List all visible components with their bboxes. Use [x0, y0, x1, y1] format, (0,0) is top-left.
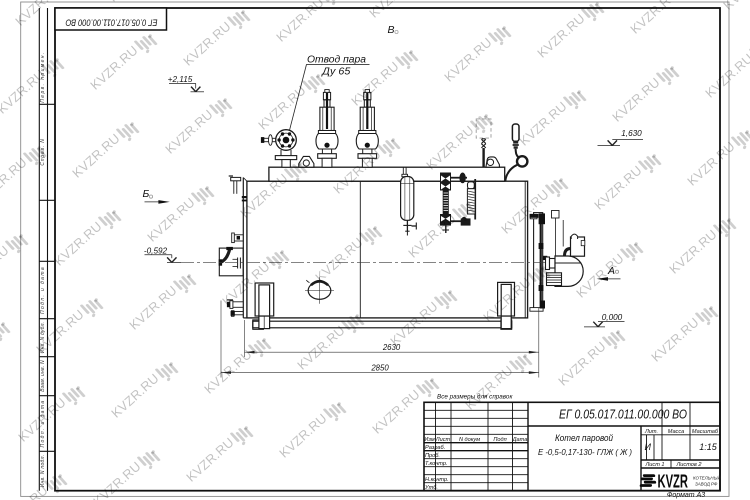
svg-text:Дата: Дата: [512, 437, 528, 443]
svg-text:KVZR: KVZR: [658, 471, 689, 492]
svg-text:Взам. инв. N: Взам. инв. N: [40, 360, 46, 392]
svg-text:+2,115: +2,115: [168, 75, 193, 84]
svg-text:Подп: Подп: [493, 437, 506, 443]
svg-text:Листов 2: Листов 2: [675, 462, 702, 468]
svg-text:Утб.: Утб.: [424, 485, 438, 491]
svg-text:Б: Б: [143, 188, 150, 200]
svg-text:Разраб.: Разраб.: [425, 445, 445, 451]
svg-text:1,630: 1,630: [621, 129, 642, 138]
svg-text:N докум: N докум: [459, 437, 480, 443]
svg-text:Е -0,5-0,17-130- ГЛЖ ( Ж ): Е -0,5-0,17-130- ГЛЖ ( Ж ): [538, 447, 632, 457]
svg-text:Лист 1: Лист 1: [644, 462, 664, 468]
svg-text:Отвод пара: Отвод пара: [307, 54, 366, 65]
svg-text:Масса: Масса: [668, 429, 685, 435]
svg-text:0,000: 0,000: [602, 313, 623, 322]
svg-text:В: В: [388, 24, 395, 36]
svg-text:Подп. и дата: Подп. и дата: [40, 266, 46, 314]
svg-text:Лист: Лист: [435, 437, 451, 443]
svg-text:Изм: Изм: [424, 437, 435, 443]
svg-text:ЕГ 0.05.017.011.00.000 ВО: ЕГ 0.05.017.011.00.000 ВО: [66, 18, 158, 28]
svg-text:Лит.: Лит.: [644, 429, 658, 435]
svg-text:И: И: [645, 442, 652, 452]
svg-text:КОТЕЛЬНЫЙ: КОТЕЛЬНЫЙ: [693, 476, 721, 481]
svg-text:Котел паровой: Котел паровой: [555, 433, 613, 443]
svg-text:Масштаб: Масштаб: [692, 429, 719, 435]
svg-text:Проб.: Проб.: [425, 453, 440, 459]
svg-text:Формат А3: Формат А3: [667, 492, 705, 499]
svg-text:2850: 2850: [370, 364, 389, 373]
svg-text:ЗАВОД РФ: ЗАВОД РФ: [695, 482, 718, 487]
svg-text:Н.контр.: Н.контр.: [425, 477, 449, 483]
svg-text:Ду 65: Ду 65: [321, 67, 351, 78]
svg-text:-0,592: -0,592: [144, 246, 168, 255]
svg-text:1:15: 1:15: [699, 442, 718, 452]
svg-text:ЕГ 0.05.017.011.00.000 ВО: ЕГ 0.05.017.011.00.000 ВО: [559, 408, 687, 422]
svg-text:Т.контр.: Т.контр.: [425, 461, 448, 467]
